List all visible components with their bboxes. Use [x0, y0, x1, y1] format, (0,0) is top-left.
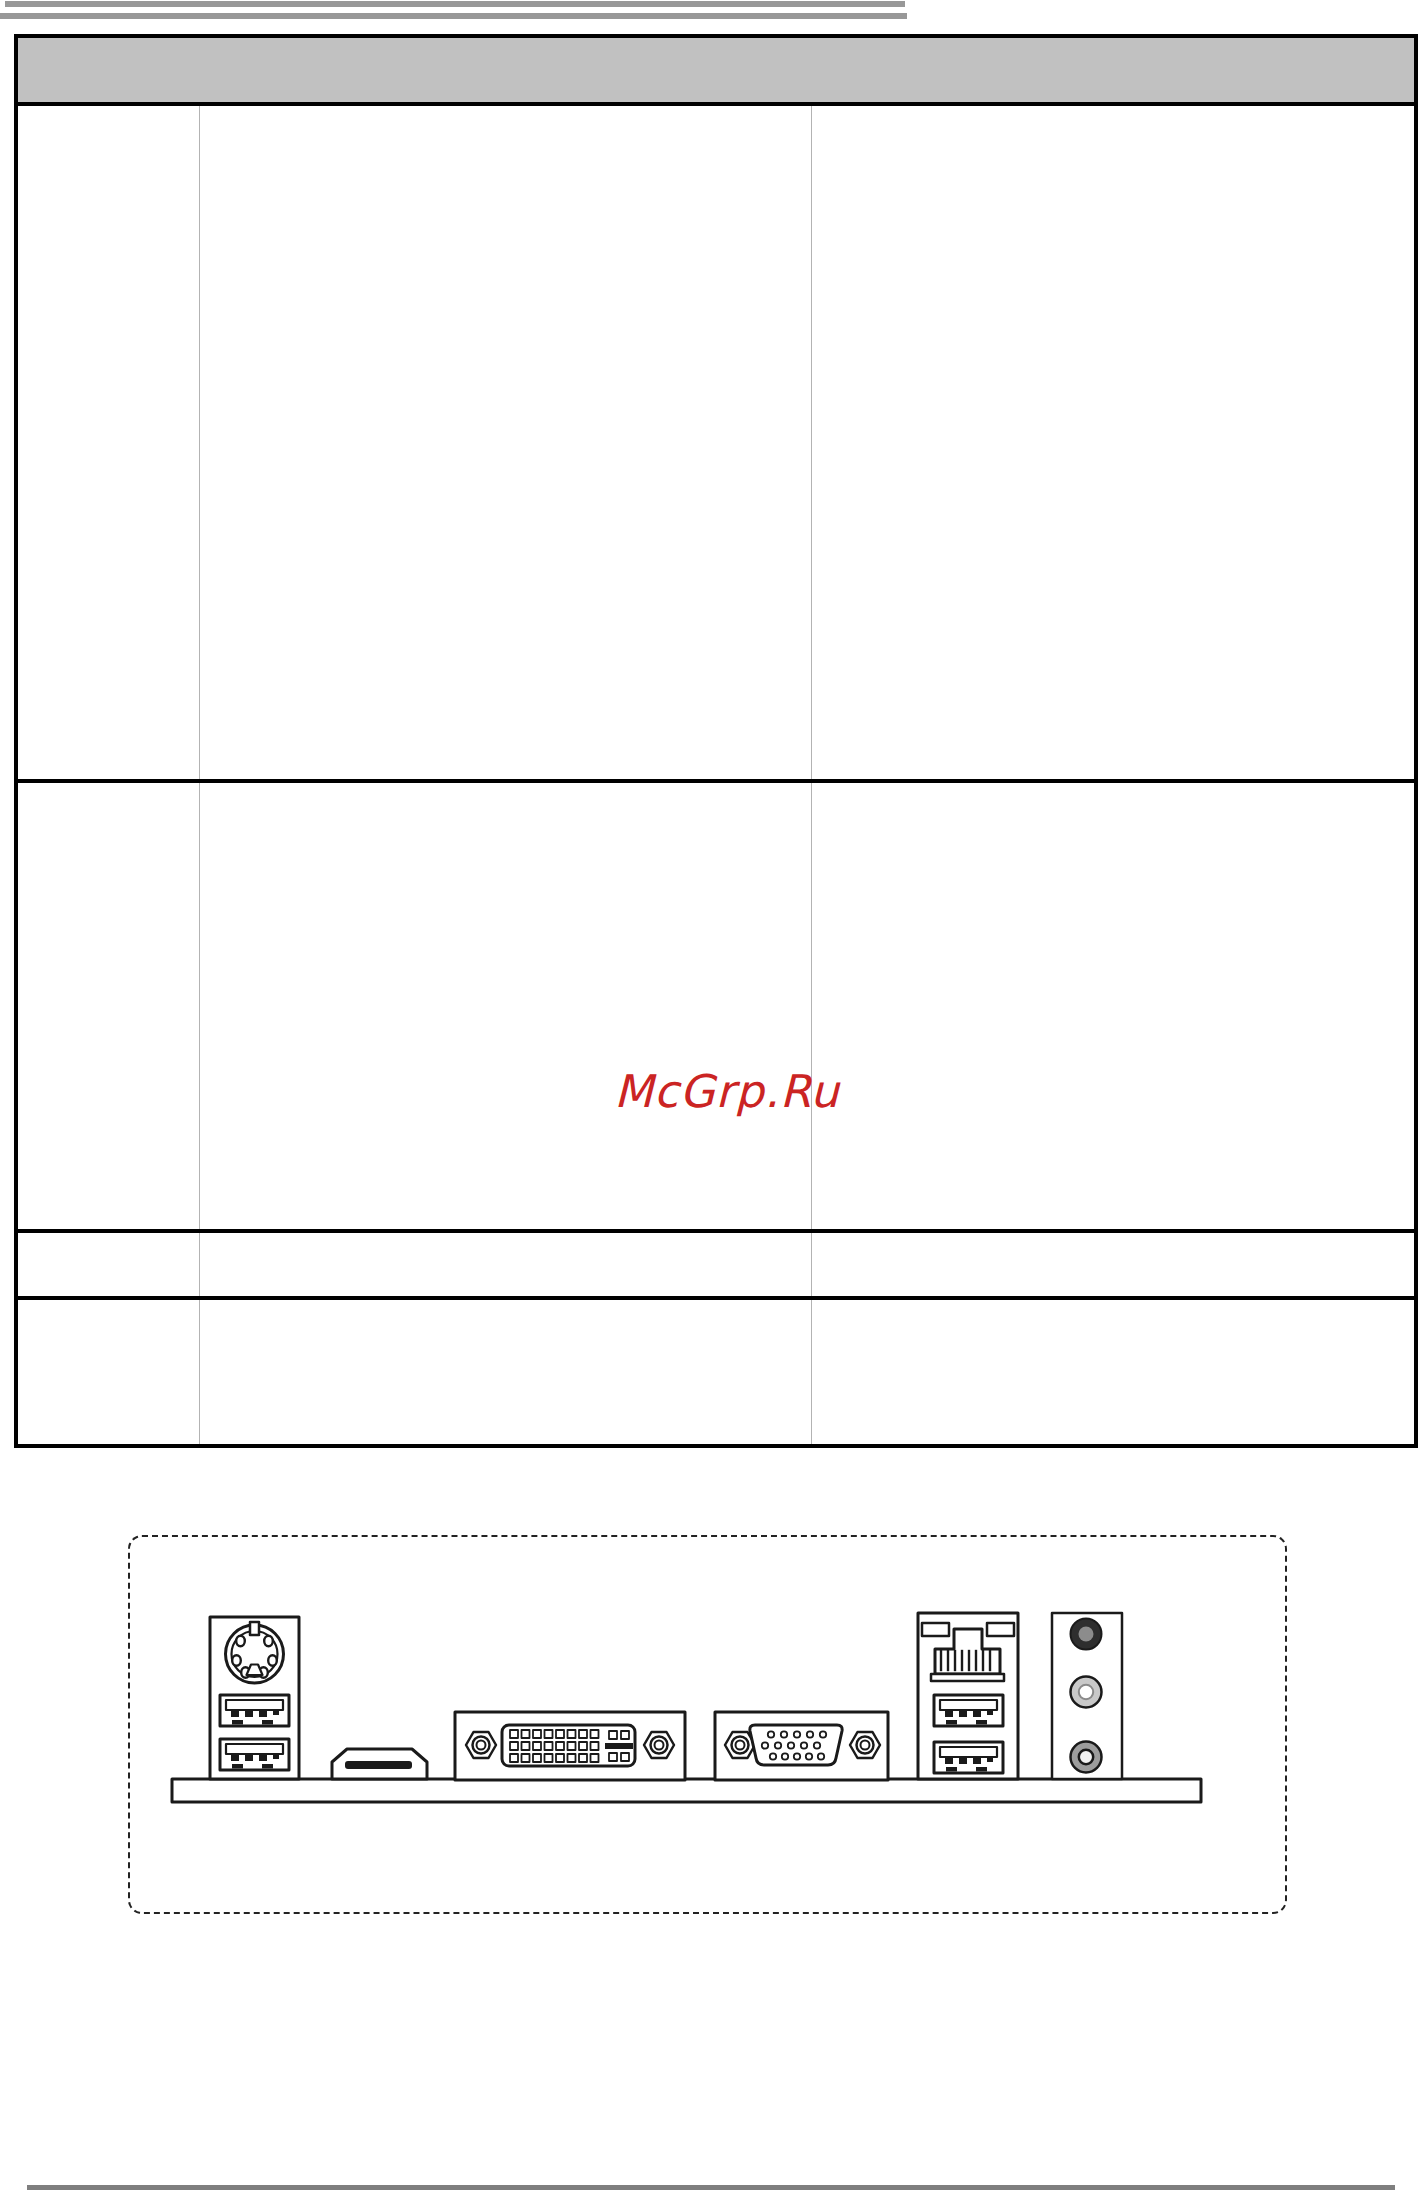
table-cell: [18, 1233, 200, 1296]
table-cell: [18, 783, 200, 1229]
spec-table: [14, 34, 1418, 1448]
audio-jack-column: [1052, 1613, 1122, 1779]
table-cell: [812, 106, 1414, 779]
audio-jack-light-icon: [1071, 1677, 1102, 1708]
io-bracket-bar: [172, 1779, 1201, 1802]
table-cell: [18, 106, 200, 779]
table-row: [18, 1233, 1414, 1300]
vga-port-icon: [715, 1712, 888, 1780]
manual-page: McGrp.Ru: [0, 0, 1420, 2192]
lan-rj45-port-icon: [922, 1623, 1014, 1681]
usb-port-icon: [220, 1739, 289, 1770]
lan-usb-stack: [918, 1613, 1018, 1779]
usb-port-icon: [934, 1742, 1003, 1773]
table-cell: [812, 783, 1414, 1229]
table-cell: [812, 1300, 1414, 1444]
table-cell: [812, 1233, 1414, 1296]
table-cell: [18, 1300, 200, 1444]
io-panel-diagram: [128, 1535, 1287, 1914]
hdmi-port-icon: [332, 1749, 427, 1779]
top-rule-bar-2: [0, 13, 907, 19]
table-cell: [200, 783, 812, 1229]
ps2-usb-stack: [210, 1617, 299, 1779]
audio-jack-dark-icon: [1071, 1619, 1102, 1650]
screw-nut-icon: [644, 1732, 674, 1758]
table-cell: [200, 1300, 812, 1444]
screw-nut-icon: [466, 1732, 496, 1758]
table-row: [18, 1300, 1414, 1444]
table-cell: [200, 106, 812, 779]
top-rule-bar-1: [5, 1, 905, 7]
usb-port-icon: [934, 1695, 1003, 1726]
table-row: [18, 783, 1414, 1233]
table-cell: [200, 1233, 812, 1296]
audio-jack-gray-icon: [1071, 1742, 1102, 1773]
usb-port-icon: [220, 1695, 289, 1726]
table-row: [18, 106, 1414, 783]
bottom-rule-bar: [27, 2185, 1395, 2190]
spec-table-header: [18, 38, 1414, 106]
dvi-d-port-icon: [455, 1712, 685, 1780]
watermark-text: McGrp.Ru: [614, 1069, 840, 1114]
screw-nut-icon: [850, 1732, 880, 1758]
